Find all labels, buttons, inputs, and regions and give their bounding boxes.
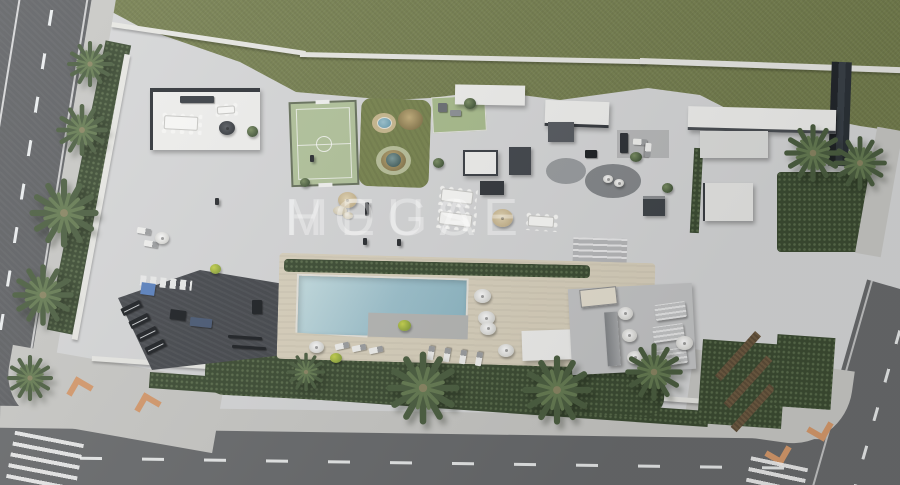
bollard xyxy=(310,155,314,162)
sand-mound xyxy=(398,109,423,130)
palm-tree xyxy=(6,354,54,402)
palm-tree xyxy=(28,177,100,249)
palm-tree xyxy=(11,263,75,327)
cable-station xyxy=(252,300,262,314)
parasol-table xyxy=(480,322,496,335)
planter-shrub xyxy=(433,158,444,168)
pool-pavilion xyxy=(463,150,498,176)
table-top xyxy=(217,105,236,114)
garden-hedge-block xyxy=(773,334,836,410)
court-center-circle xyxy=(316,135,333,152)
parasol-table xyxy=(474,289,491,303)
lounge-sofa xyxy=(644,143,651,157)
table-top xyxy=(528,215,555,228)
palm-tree xyxy=(385,350,461,426)
palm-tree xyxy=(624,342,684,402)
site-plan-render: MEGA HOUSE xyxy=(0,0,900,485)
parasol-table xyxy=(622,329,637,342)
palm-tree xyxy=(55,103,109,157)
sports-court xyxy=(289,100,360,187)
gym-machine xyxy=(169,309,186,321)
outdoor-kitchen-bar xyxy=(180,96,214,103)
parasol-table xyxy=(155,232,169,244)
parasol-table xyxy=(498,344,514,357)
accent-plant xyxy=(210,264,221,274)
planter-shrub xyxy=(247,126,258,137)
parasol-table xyxy=(618,307,633,320)
palm-tree xyxy=(521,354,593,426)
watermark-line2: HOUSE xyxy=(285,192,530,244)
pergola-frame xyxy=(620,133,628,153)
table-top xyxy=(164,115,199,131)
roof-terrace-inset xyxy=(548,122,574,142)
palm-tree xyxy=(286,352,326,392)
dining-table xyxy=(212,101,239,119)
lounge-chair xyxy=(603,175,613,183)
pond xyxy=(377,117,392,129)
pool-walkway xyxy=(368,313,469,340)
kiosk-dark xyxy=(509,147,531,175)
bollard xyxy=(215,198,219,205)
round-table-dark xyxy=(219,121,235,135)
kiosk-dark xyxy=(643,196,665,216)
planter-box xyxy=(585,150,597,158)
gym-blue-mat xyxy=(140,282,156,296)
paved-circle xyxy=(546,158,586,184)
building-right-lower xyxy=(703,183,753,221)
bbq-pergola xyxy=(579,286,618,308)
accent-plant xyxy=(398,320,411,331)
play-structure xyxy=(438,103,447,112)
goal-north xyxy=(315,100,329,104)
lounge-chair xyxy=(614,179,624,187)
palm-tree xyxy=(66,40,114,88)
tree-round xyxy=(464,98,476,109)
fire-pit-lounge xyxy=(585,164,641,198)
planter-shrub xyxy=(630,152,642,162)
accent-plant xyxy=(330,353,342,363)
dining-table xyxy=(159,111,202,135)
hedge-column-right xyxy=(690,148,703,233)
building-right-wing xyxy=(700,131,768,158)
amphitheater-steps xyxy=(573,237,628,263)
planter-shrub xyxy=(300,178,310,187)
planter-shrub xyxy=(662,183,673,193)
palm-tree xyxy=(832,135,888,191)
goal-south xyxy=(318,183,332,187)
play-structure xyxy=(450,110,461,116)
sun-lounger xyxy=(137,227,152,235)
water-feature-dome xyxy=(386,153,401,167)
